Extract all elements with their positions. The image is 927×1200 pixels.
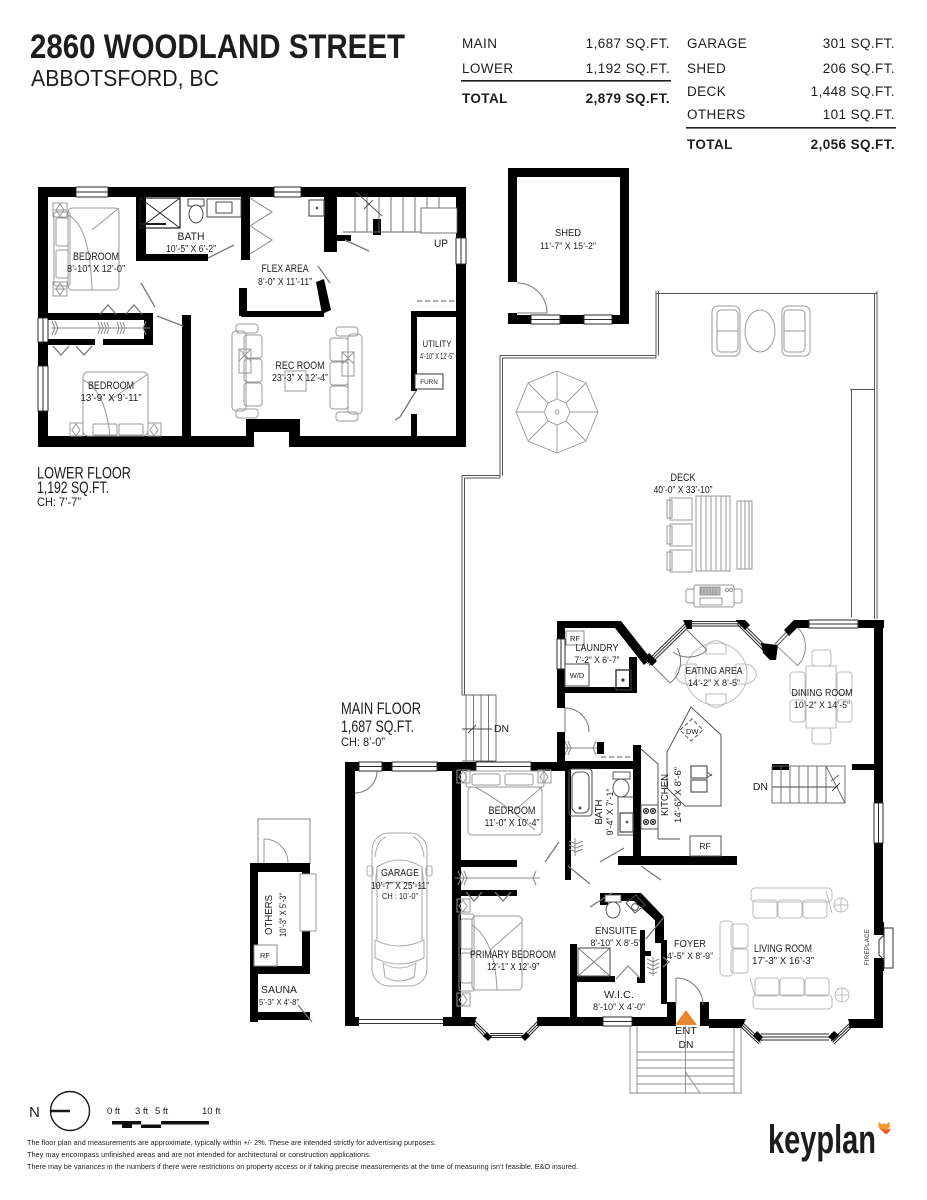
- svg-text:8’-10” X 4’-0”: 8’-10” X 4’-0”: [593, 1002, 645, 1013]
- svg-text:DW: DW: [686, 727, 699, 736]
- svg-text:10’-3” X 5’-3”: 10’-3” X 5’-3”: [278, 893, 288, 937]
- svg-text:N: N: [29, 1104, 40, 1121]
- svg-text:BEDROOM: BEDROOM: [88, 380, 134, 392]
- svg-text:LOWER: LOWER: [462, 61, 514, 76]
- svg-text:CH: 7’-7”: CH: 7’-7”: [37, 495, 81, 509]
- svg-text:301 SQ.FT.: 301 SQ.FT.: [823, 36, 895, 51]
- svg-text:12’-1” X 12’-9”: 12’-1” X 12’-9”: [487, 962, 539, 973]
- svg-text:GARAGE: GARAGE: [687, 36, 747, 51]
- svg-text:206 SQ.FT.: 206 SQ.FT.: [823, 61, 895, 76]
- svg-text:17’-3” X 16’-3”: 17’-3” X 16’-3”: [752, 956, 814, 967]
- svg-text:BEDROOM: BEDROOM: [489, 805, 536, 817]
- svg-text:2860 WOODLAND STREET: 2860 WOODLAND STREET: [30, 28, 405, 66]
- svg-text:BATH: BATH: [178, 231, 205, 243]
- svg-text:DECK: DECK: [671, 472, 697, 484]
- svg-text:2,879 SQ.FT.: 2,879 SQ.FT.: [586, 91, 670, 106]
- svg-text:FLEX AREA: FLEX AREA: [262, 263, 310, 275]
- svg-text:1,687 SQ.FT.: 1,687 SQ.FT.: [341, 718, 414, 736]
- svg-text:5 ft: 5 ft: [155, 1106, 169, 1117]
- svg-text:11’-0” X 10’-4”: 11’-0” X 10’-4”: [485, 818, 540, 829]
- svg-text:SHED: SHED: [555, 227, 581, 239]
- svg-text:11’-7” X 15’-2”: 11’-7” X 15’-2”: [540, 241, 596, 251]
- svg-text:They may encompass unfinished: They may encompass unfinished areas and …: [27, 1150, 371, 1159]
- svg-text:FIREPLACE: FIREPLACE: [865, 929, 871, 965]
- svg-text:OTHERS: OTHERS: [687, 107, 746, 122]
- svg-text:3 ft: 3 ft: [135, 1106, 149, 1117]
- svg-text:8’-10” X 12’-0”: 8’-10” X 12’-0”: [67, 264, 125, 275]
- svg-text:DN: DN: [679, 1040, 694, 1051]
- svg-text:BATH: BATH: [593, 800, 605, 825]
- svg-text:1,687 SQ.FT.: 1,687 SQ.FT.: [586, 36, 670, 51]
- svg-text:SHED: SHED: [687, 61, 726, 76]
- svg-text:FURN: FURN: [420, 379, 438, 386]
- svg-text:KITCHEN: KITCHEN: [659, 774, 671, 816]
- svg-text:10 ft: 10 ft: [202, 1106, 221, 1117]
- svg-text:DINING ROOM: DINING ROOM: [792, 687, 853, 699]
- svg-text:8’-10” X 8’-5”: 8’-10” X 8’-5”: [591, 938, 642, 949]
- svg-text:RF: RF: [260, 951, 270, 960]
- svg-text:keyplan: keyplan: [768, 1118, 876, 1162]
- svg-text:23’-3” X 12’-4”: 23’-3” X 12’-4”: [272, 373, 328, 384]
- svg-text:101 SQ.FT.: 101 SQ.FT.: [823, 107, 895, 122]
- svg-text:LIVING ROOM: LIVING ROOM: [754, 943, 812, 955]
- svg-text:MAIN: MAIN: [462, 36, 497, 51]
- svg-text:BEDROOM: BEDROOM: [73, 251, 119, 263]
- svg-text:PRIMARY BEDROOM: PRIMARY BEDROOM: [470, 949, 556, 961]
- svg-text:ENT: ENT: [675, 1026, 697, 1037]
- svg-text:DN: DN: [753, 781, 768, 793]
- svg-text:EATING AREA: EATING AREA: [686, 665, 743, 677]
- svg-text:DECK: DECK: [687, 84, 726, 99]
- svg-text:10’-2” X 14’-5”: 10’-2” X 14’-5”: [794, 700, 850, 711]
- svg-text:4’-10” X 12’-5”: 4’-10” X 12’-5”: [420, 352, 454, 361]
- svg-text:8’-0” X 11’-11”: 8’-0” X 11’-11”: [258, 277, 312, 288]
- svg-text:0 ft: 0 ft: [107, 1106, 121, 1117]
- svg-text:4’-5” X 8’-9”: 4’-5” X 8’-9”: [667, 951, 713, 962]
- svg-text:14’-6” X 8’-6”: 14’-6” X 8’-6”: [673, 767, 684, 823]
- svg-text:GARAGE: GARAGE: [381, 867, 419, 879]
- svg-text:TOTAL: TOTAL: [687, 137, 733, 152]
- svg-text:There may be variances in the: There may be variances in the numbers if…: [27, 1162, 578, 1171]
- svg-text:10’-5” X 6’-2”: 10’-5” X 6’-2”: [166, 244, 216, 255]
- svg-text:14’-2” X 8’-5”: 14’-2” X 8’-5”: [688, 678, 740, 689]
- svg-text:UTILITY: UTILITY: [423, 339, 453, 350]
- svg-text:UP: UP: [434, 238, 448, 250]
- svg-text:13’-9” X 9’-11”: 13’-9” X 9’-11”: [81, 393, 142, 404]
- svg-text:CH : 10’-0”: CH : 10’-0”: [382, 891, 418, 901]
- svg-text:40’-0” X 33’-10”: 40’-0” X 33’-10”: [654, 485, 713, 496]
- svg-text:1,192 SQ.FT.: 1,192 SQ.FT.: [586, 61, 670, 76]
- svg-text:CH: 8’-0”: CH: 8’-0”: [341, 735, 385, 749]
- svg-text:5’-3” X 4’-8”: 5’-3” X 4’-8”: [259, 997, 299, 1007]
- svg-text:ABBOTSFORD, BC: ABBOTSFORD, BC: [31, 65, 219, 91]
- svg-text:LAUNDRY: LAUNDRY: [576, 642, 619, 654]
- svg-text:The floor plan and measurement: The floor plan and measurements are appr…: [27, 1138, 436, 1147]
- svg-text:TOTAL: TOTAL: [462, 91, 508, 106]
- svg-text:RF: RF: [699, 841, 710, 851]
- svg-text:FOYER: FOYER: [674, 938, 706, 950]
- svg-text:ENSUITE: ENSUITE: [595, 925, 637, 937]
- svg-text:OTHERS: OTHERS: [264, 895, 275, 935]
- svg-text:SAUNA: SAUNA: [261, 985, 297, 996]
- svg-text:9’-4” X 7’-1”: 9’-4” X 7’-1”: [605, 789, 616, 836]
- svg-text:2,056 SQ.FT.: 2,056 SQ.FT.: [811, 137, 895, 152]
- svg-text:W/D: W/D: [570, 671, 585, 680]
- svg-text:MAIN FLOOR: MAIN FLOOR: [341, 700, 421, 718]
- svg-text:DN: DN: [494, 723, 509, 735]
- svg-text:W.I.C.: W.I.C.: [604, 989, 634, 1001]
- svg-text:REC ROOM: REC ROOM: [276, 360, 325, 372]
- svg-text:1,448 SQ.FT.: 1,448 SQ.FT.: [811, 84, 895, 99]
